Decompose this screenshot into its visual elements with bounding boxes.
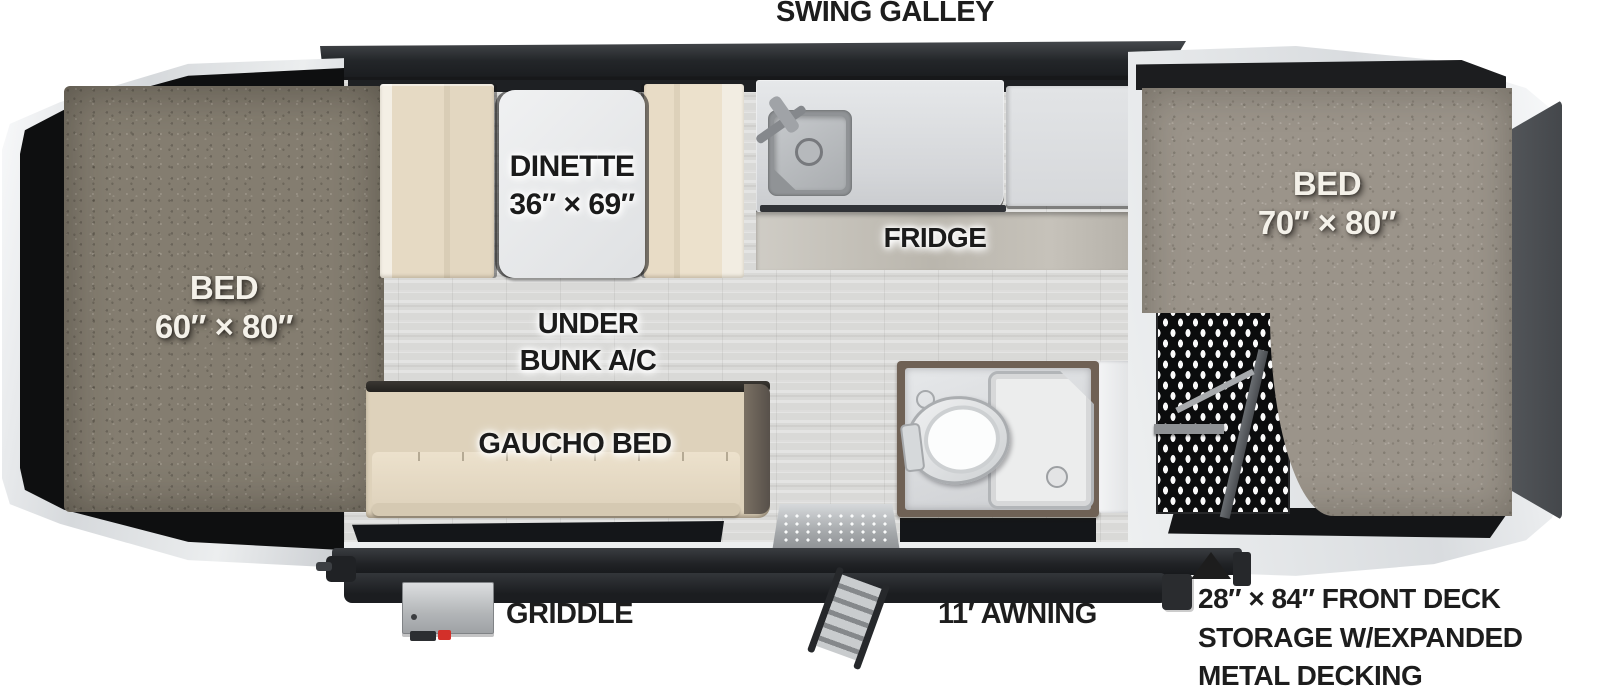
- deck-ladder-step: [1154, 424, 1224, 434]
- griddle-foot: [410, 631, 436, 641]
- entry-door-mat-tread: [782, 512, 890, 545]
- awning-bracket-right: [1162, 574, 1192, 610]
- gaucho-bed-rail: [366, 381, 770, 392]
- dinette-name: DINETTE: [470, 148, 674, 186]
- griddle: [402, 582, 494, 634]
- gaucho-bed-label: GAUCHO BED: [420, 428, 730, 461]
- expanded-metal-decking: [1156, 310, 1290, 514]
- under-bunk-ac-line2: BUNK A/C: [468, 343, 708, 380]
- fridge-label: FRIDGE: [835, 222, 1035, 254]
- right-bed-label: BED 70″ × 80″: [1142, 164, 1512, 242]
- galley-toe-kick: [760, 205, 1006, 212]
- left-tent-bed: BED 60″ × 80″: [64, 86, 384, 512]
- awning-rail-upper: [332, 548, 1242, 575]
- floorplan-canvas: SWING GALLEY BED 60″ × 80″ DINETTE 36″ ×…: [0, 0, 1600, 690]
- left-bed-size: 60″ × 80″: [64, 307, 384, 346]
- gaucho-bed-end-panel: [744, 384, 770, 514]
- right-bed-size: 70″ × 80″: [1142, 203, 1512, 242]
- left-bed-name: BED: [64, 268, 384, 307]
- right-bed-name: BED: [1142, 164, 1512, 203]
- griddle-label: GRIDDLE: [506, 598, 633, 631]
- dinette-size: 36″ × 69″: [470, 186, 674, 224]
- toilet-icon: [901, 390, 1015, 490]
- shower-drain-icon: [1046, 466, 1068, 488]
- front-deck-note-line3: METAL DECKING: [1198, 657, 1522, 690]
- galley-counter-right: [1006, 86, 1148, 206]
- left-bed-label: BED 60″ × 80″: [64, 268, 384, 346]
- gaucho-bed-bumper: [372, 503, 740, 516]
- front-deck-note-line1: 28″ × 84″ FRONT DECK: [1198, 580, 1522, 619]
- up-triangle-icon: [1191, 552, 1231, 579]
- right-tent-end-canvas-top: [1136, 60, 1506, 90]
- griddle-knob: [438, 630, 451, 640]
- under-bunk-ac-line1: UNDER: [468, 306, 708, 343]
- dinette-label: DINETTE 36″ × 69″: [470, 148, 674, 224]
- faucet-sprayer-icon: [795, 138, 823, 166]
- griddle-screw: [411, 614, 417, 620]
- swing-galley-rail: [320, 41, 1186, 77]
- front-deck-note: 28″ × 84″ FRONT DECK STORAGE W/EXPANDED …: [1198, 580, 1522, 690]
- awning-pin-left: [316, 562, 332, 571]
- awning-label: 11′ AWNING: [938, 598, 1097, 631]
- right-tent-end-panel: [1504, 100, 1562, 520]
- front-deck-note-line2: STORAGE W/EXPANDED: [1198, 619, 1522, 658]
- under-bunk-ac-label: UNDER BUNK A/C: [468, 306, 708, 380]
- swing-galley-label: SWING GALLEY: [660, 0, 1110, 29]
